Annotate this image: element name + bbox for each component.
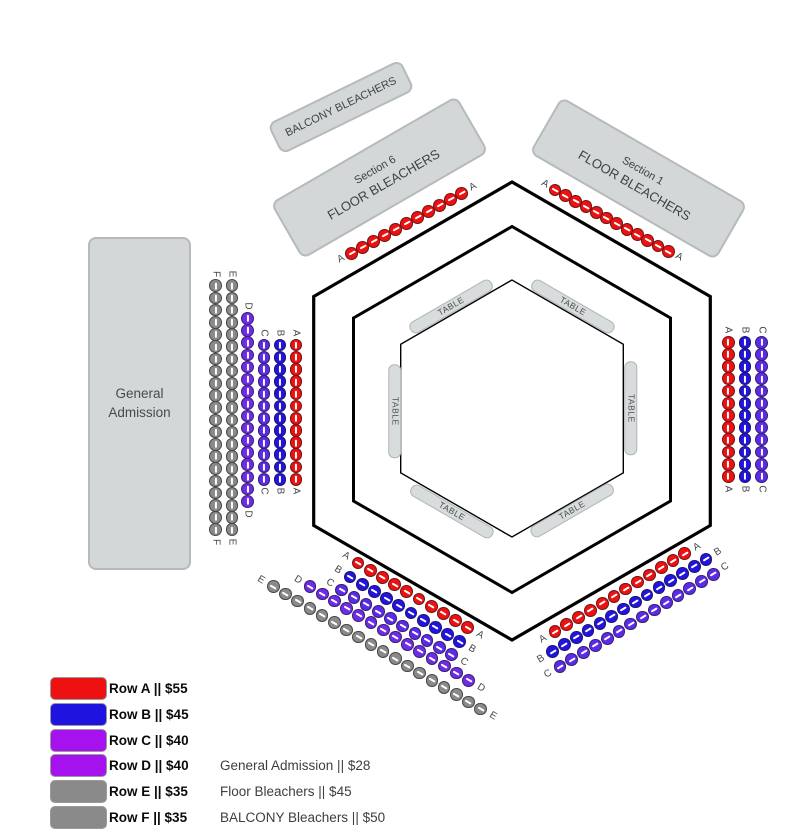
row-label-left-F-start: F (210, 270, 221, 276)
seat-dash (247, 376, 249, 383)
seat-dash (573, 635, 580, 640)
seat-dash (215, 429, 217, 436)
seat-dash (744, 449, 746, 456)
seat-left-B-2[interactable] (274, 351, 287, 364)
seat-right-A-2[interactable] (722, 348, 735, 361)
seat-left-D-12[interactable] (241, 446, 254, 459)
seat-dash (392, 635, 399, 640)
seat-dash (399, 623, 406, 628)
seat-bottom-left-D-14[interactable] (462, 674, 475, 687)
seat-dash (447, 197, 454, 202)
seat-dash (247, 315, 249, 322)
seat-dash (215, 356, 217, 363)
legend-swatch-row-d (50, 754, 107, 777)
seat-left-E-5[interactable] (226, 328, 239, 341)
seat-bottom-left-E-7[interactable] (340, 624, 353, 637)
seat-right-A-5[interactable] (722, 385, 735, 398)
seat-dash (465, 699, 472, 704)
seat-dash (319, 591, 326, 596)
seat-dash (425, 209, 432, 214)
seat-left-D-7[interactable] (241, 385, 254, 398)
seat-right-A-11[interactable] (722, 458, 735, 471)
seat-dash (279, 415, 281, 422)
row-label-left-A-end: A (291, 488, 302, 495)
seat-dash (279, 390, 281, 397)
seat-bottom-left-D-2[interactable] (316, 588, 329, 601)
seat-dash (727, 388, 729, 395)
seat-dash (355, 635, 362, 640)
seat-dash (215, 307, 217, 314)
seat-bottom-left-D-5[interactable] (352, 609, 365, 622)
seat-dash (727, 424, 729, 431)
seat-left-F-15[interactable] (209, 450, 222, 463)
seat-left-F-5[interactable] (209, 328, 222, 341)
seat-dash (247, 498, 249, 505)
row-label-left-B-end: B (275, 488, 286, 495)
row-label-right-A-start: A (723, 327, 734, 334)
seat-left-A-2[interactable] (290, 351, 303, 364)
seat-dash (263, 403, 265, 410)
seat-dash (282, 591, 289, 596)
seat-dash (727, 400, 729, 407)
seat-dash (465, 678, 472, 683)
seat-dash (453, 671, 460, 676)
seat-left-E-10[interactable] (226, 389, 239, 402)
seat-bottom-right-A-4[interactable] (584, 604, 597, 617)
seat-dash (295, 476, 297, 483)
seat-dash (620, 607, 627, 612)
seat-dash (263, 415, 265, 422)
seat-bottom-left-E-9[interactable] (365, 638, 378, 651)
seat-right-A-12[interactable] (722, 470, 735, 483)
seat-dash (368, 642, 375, 647)
seat-dash (727, 351, 729, 358)
seat-bottom-left-B-2[interactable] (356, 578, 369, 591)
seat-dash (231, 453, 233, 460)
seat-dash (295, 390, 297, 397)
seat-dash (761, 363, 763, 370)
seat-left-A-7[interactable] (290, 412, 303, 425)
seat-dash (644, 592, 651, 597)
seat-left-E-9[interactable] (226, 377, 239, 390)
seat-bottom-right-B-13[interactable] (688, 560, 701, 573)
seat-dash (231, 368, 233, 375)
seat-bottom-left-E-6[interactable] (328, 616, 341, 629)
seat-dash (295, 342, 297, 349)
seat-left-E-4[interactable] (226, 316, 239, 329)
seat-bottom-right-A-9[interactable] (643, 569, 656, 582)
seat-dash (568, 657, 575, 662)
seat-dash (279, 464, 281, 471)
seat-left-E-14[interactable] (226, 438, 239, 451)
seat-dash (761, 412, 763, 419)
table-4[interactable]: TABLE (625, 362, 638, 456)
seat-dash (343, 627, 350, 632)
seat-dash (215, 295, 217, 302)
seat-right-A-8[interactable] (722, 421, 735, 434)
seat-dash (263, 354, 265, 361)
seat-left-D-2[interactable] (241, 324, 254, 337)
seat-left-F-10[interactable] (209, 389, 222, 402)
seat-dash (231, 331, 233, 338)
seat-dash (247, 364, 249, 371)
seat-bottom-right-C-4[interactable] (589, 639, 602, 652)
seat-dash (231, 514, 233, 521)
seat-bottom-left-E-14[interactable] (426, 674, 439, 687)
seat-bottom-left-D-9[interactable] (401, 638, 414, 651)
seat-left-B-3[interactable] (274, 363, 287, 376)
seat-dash (557, 664, 564, 669)
seat-dash (215, 465, 217, 472)
seat-dash (761, 473, 763, 480)
seat-bottom-right-A-10[interactable] (655, 561, 668, 574)
seat-dash (651, 607, 658, 612)
seat-dash (215, 404, 217, 411)
seat-dash (247, 449, 249, 456)
seat-dash (703, 557, 710, 562)
seat-dash (691, 564, 698, 569)
seat-dash (231, 307, 233, 314)
seat-right-A-3[interactable] (722, 360, 735, 373)
seat-dash (338, 587, 345, 592)
seat-dash (441, 685, 448, 690)
seat-dash (710, 572, 717, 577)
seat-dash (380, 649, 387, 654)
seat-dash (215, 514, 217, 521)
legend-swatch-row-a (50, 677, 107, 700)
seat-right-C-6[interactable] (755, 397, 768, 410)
seat-bottom-left-A-3[interactable] (376, 571, 389, 584)
seat-dash (744, 473, 746, 480)
seat-dash (761, 375, 763, 382)
seat-left-F-14[interactable] (209, 438, 222, 451)
seat-bottom-right-B-4[interactable] (582, 624, 595, 637)
seat-left-D-11[interactable] (241, 434, 254, 447)
seat-dash (368, 620, 375, 625)
legend-swatch-row-b (50, 703, 107, 726)
seat-dash (404, 642, 411, 647)
seat-dash (604, 636, 611, 641)
seat-dash (359, 582, 366, 587)
seat-right-B-6[interactable] (739, 397, 752, 410)
seat-dash (295, 366, 297, 373)
seat-dash (727, 412, 729, 419)
seat-bottom-left-A-9[interactable] (449, 614, 462, 627)
seat-left-B-12[interactable] (274, 473, 287, 486)
seat-dash (616, 629, 623, 634)
seat-left-F-19[interactable] (209, 499, 222, 512)
seat-dash (436, 203, 443, 208)
seat-dash (698, 579, 705, 584)
seat-bottom-right-A-3[interactable] (572, 611, 585, 624)
seat-dash (247, 352, 249, 359)
seat-bottom-left-E-4[interactable] (304, 602, 317, 615)
seat-dash (263, 378, 265, 385)
seat-dash (552, 629, 559, 634)
seat-bottom-right-C-14[interactable] (707, 568, 720, 581)
seat-bottom-right-A-6[interactable] (608, 590, 621, 603)
seat-bottom-left-E-16[interactable] (450, 688, 463, 701)
seat-dash (215, 331, 217, 338)
seat-dash (231, 404, 233, 411)
legend-label-3: Row C || $40 (109, 729, 189, 752)
seat-bottom-left-D-3[interactable] (328, 595, 341, 608)
seat-dash (392, 656, 399, 661)
legend-label-6: Row F || $35 (109, 806, 187, 829)
seat-top-left-A-11[interactable] (455, 187, 468, 200)
seat-bottom-right-C-13[interactable] (695, 575, 708, 588)
seat-dash (347, 574, 354, 579)
legend-swatch-row-c (50, 729, 107, 752)
seat-right-C-3[interactable] (755, 360, 768, 373)
seat-dash (295, 439, 297, 446)
seat-dash (279, 476, 281, 483)
seat-dash (761, 449, 763, 456)
seat-bottom-left-A-2[interactable] (364, 564, 377, 577)
seat-dash (379, 575, 386, 580)
seat-bottom-right-C-9[interactable] (648, 604, 661, 617)
seat-dash (456, 639, 463, 644)
seat-top-right-A-12[interactable] (662, 245, 675, 258)
seat-bottom-left-E-12[interactable] (401, 660, 414, 673)
seat-bottom-left-B-9[interactable] (441, 628, 454, 641)
seat-dash (348, 251, 355, 256)
seat-right-C-2[interactable] (755, 348, 768, 361)
seat-dash (441, 663, 448, 668)
seat-dash (263, 464, 265, 471)
seat-left-E-20[interactable] (226, 511, 239, 524)
seat-dash (395, 603, 402, 608)
seat-left-B-8[interactable] (274, 424, 287, 437)
seat-dash (247, 486, 249, 493)
seat-bottom-left-B-4[interactable] (380, 592, 393, 605)
seat-dash (658, 565, 665, 570)
seat-bottom-left-E-11[interactable] (389, 652, 402, 665)
seat-left-C-2[interactable] (258, 351, 271, 364)
seat-dash (562, 193, 569, 198)
seat-dash (231, 502, 233, 509)
seat-left-B-7[interactable] (274, 412, 287, 425)
seat-bottom-left-D-13[interactable] (450, 667, 463, 680)
seat-bottom-right-B-2[interactable] (558, 638, 571, 651)
seat-dash (367, 568, 374, 573)
seat-dash (655, 244, 662, 249)
seat-left-C-12[interactable] (258, 473, 271, 486)
seat-bottom-left-E-17[interactable] (462, 696, 475, 709)
seat-dash (679, 571, 686, 576)
seat-bottom-left-E-2[interactable] (279, 588, 292, 601)
seat-dash (215, 490, 217, 497)
seat-bottom-left-D-12[interactable] (438, 660, 451, 673)
seat-dash (744, 424, 746, 431)
seat-dash (744, 388, 746, 395)
seat-dash (404, 663, 411, 668)
seat-bottom-right-C-6[interactable] (613, 625, 626, 638)
seat-bottom-left-B-3[interactable] (368, 585, 381, 598)
seat-right-A-9[interactable] (722, 433, 735, 446)
seat-dash (593, 210, 600, 215)
seat-right-B-12[interactable] (739, 470, 752, 483)
seat-dash (319, 613, 326, 618)
seat-dash (727, 339, 729, 346)
seat-dash (247, 339, 249, 346)
seat-dash (665, 249, 672, 254)
seat-right-A-10[interactable] (722, 446, 735, 459)
row-label-right-B-end: B (740, 485, 751, 492)
price-note-1: General Admission || $28 (220, 754, 370, 777)
seat-left-C-7[interactable] (258, 412, 271, 425)
legend-swatch-row-f (50, 806, 107, 829)
seat-bottom-right-C-3[interactable] (577, 646, 590, 659)
row-label-right-A-end: A (723, 485, 734, 492)
seat-dash (307, 584, 314, 589)
seat-dash (761, 400, 763, 407)
seat-dash (686, 586, 693, 591)
seat-bottom-left-B-8[interactable] (429, 621, 442, 634)
seating-chart: BALCONY BLEACHERS Section 6 FLOOR BLEACH… (0, 0, 792, 839)
seat-dash (634, 579, 641, 584)
row-label-right-C-start: C (756, 326, 767, 333)
seat-right-C-7[interactable] (755, 409, 768, 422)
seat-dash (231, 380, 233, 387)
seat-bottom-left-A-4[interactable] (388, 578, 401, 591)
seat-right-B-2[interactable] (739, 348, 752, 361)
seat-bottom-right-B-5[interactable] (594, 617, 607, 630)
seat-dash (667, 578, 674, 583)
seat-dash (744, 375, 746, 382)
seat-bottom-right-B-14[interactable] (700, 553, 713, 566)
seat-bottom-left-C-10[interactable] (445, 648, 458, 661)
seat-left-F-20[interactable] (209, 511, 222, 524)
seat-left-A-3[interactable] (290, 363, 303, 376)
legend-label-5: Row E || $35 (109, 780, 188, 803)
seat-dash (575, 615, 582, 620)
seat-bottom-left-D-8[interactable] (389, 631, 402, 644)
seat-bottom-left-D-7[interactable] (377, 624, 390, 637)
seat-dash (380, 627, 387, 632)
seat-left-F-4[interactable] (209, 316, 222, 329)
seat-dash (279, 378, 281, 385)
seat-dash (563, 622, 570, 627)
seat-dash (608, 614, 615, 619)
seat-dash (416, 649, 423, 654)
seat-dash (279, 403, 281, 410)
seat-bottom-left-E-1[interactable] (267, 580, 280, 593)
seat-bottom-right-B-8[interactable] (629, 596, 642, 609)
seat-dash (572, 199, 579, 204)
seat-dash (613, 221, 620, 226)
seat-dash (761, 351, 763, 358)
seat-dash (295, 464, 297, 471)
seat-bottom-left-B-7[interactable] (417, 614, 430, 627)
seat-dash (670, 558, 677, 563)
seat-bottom-right-B-6[interactable] (605, 610, 618, 623)
seat-dash (403, 589, 410, 594)
seat-dash (444, 632, 451, 637)
seat-dash (215, 502, 217, 509)
seat-left-A-8[interactable] (290, 424, 303, 437)
seat-dash (420, 618, 427, 623)
seat-right-A-1[interactable] (722, 336, 735, 349)
seat-bottom-left-A-7[interactable] (425, 600, 438, 613)
seat-dash (583, 204, 590, 209)
seat-bottom-right-B-3[interactable] (570, 631, 583, 644)
seat-dash (656, 585, 663, 590)
seat-dash (744, 400, 746, 407)
seat-dash (359, 245, 366, 250)
seat-left-F-9[interactable] (209, 377, 222, 390)
seat-dash (391, 582, 398, 587)
seat-right-C-1[interactable] (755, 336, 768, 349)
seat-dash (634, 232, 641, 237)
seat-left-E-15[interactable] (226, 450, 239, 463)
seat-right-A-4[interactable] (722, 372, 735, 385)
seat-dash (675, 593, 682, 598)
seat-right-C-8[interactable] (755, 421, 768, 434)
row-label-left-C-end: C (259, 488, 270, 495)
seat-bottom-left-A-8[interactable] (437, 607, 450, 620)
seat-dash (279, 366, 281, 373)
seat-dash (375, 609, 382, 614)
table-3[interactable]: TABLE (388, 364, 401, 458)
seat-bottom-right-B-12[interactable] (676, 567, 689, 580)
seat-dash (744, 351, 746, 358)
seat-dash (263, 390, 265, 397)
seat-dash (744, 339, 746, 346)
seat-dash (295, 415, 297, 422)
seat-dash (429, 656, 436, 661)
seat-dash (587, 608, 594, 613)
seat-dash (744, 436, 746, 443)
seat-dash (383, 596, 390, 601)
seat-bottom-right-C-5[interactable] (601, 632, 614, 645)
seat-right-B-7[interactable] (739, 409, 752, 422)
seat-right-A-6[interactable] (722, 397, 735, 410)
price-note-2: Floor Bleachers || $45 (220, 780, 352, 803)
legend-label-4: Row D || $40 (109, 754, 189, 777)
seat-dash (279, 342, 281, 349)
seat-dash (458, 191, 465, 196)
seat-left-D-1[interactable] (241, 312, 254, 325)
seat-left-A-12[interactable] (290, 473, 303, 486)
seat-left-C-3[interactable] (258, 363, 271, 376)
seat-bottom-left-D-10[interactable] (413, 645, 426, 658)
seat-right-A-7[interactable] (722, 409, 735, 422)
seat-left-C-8[interactable] (258, 424, 271, 437)
row-label-right-B-start: B (740, 327, 751, 334)
seat-right-B-11[interactable] (739, 458, 752, 471)
seat-right-C-12[interactable] (755, 470, 768, 483)
seat-dash (215, 441, 217, 448)
seat-right-B-1[interactable] (739, 336, 752, 349)
seat-left-D-6[interactable] (241, 373, 254, 386)
seat-bottom-right-C-10[interactable] (660, 596, 673, 609)
seat-bottom-left-D-4[interactable] (340, 602, 353, 615)
row-label-left-D-end: D (242, 510, 253, 517)
seat-dash (215, 478, 217, 485)
seat-dash (215, 453, 217, 460)
seat-dash (644, 238, 651, 243)
seat-dash (247, 425, 249, 432)
seat-dash (215, 282, 217, 289)
seat-right-C-11[interactable] (755, 458, 768, 471)
seat-left-E-19[interactable] (226, 499, 239, 512)
seat-dash (429, 678, 436, 683)
seat-bottom-left-C-5[interactable] (384, 612, 397, 625)
seat-bottom-right-A-5[interactable] (596, 597, 609, 610)
seat-left-D-16[interactable] (241, 495, 254, 508)
seat-dash (231, 478, 233, 485)
